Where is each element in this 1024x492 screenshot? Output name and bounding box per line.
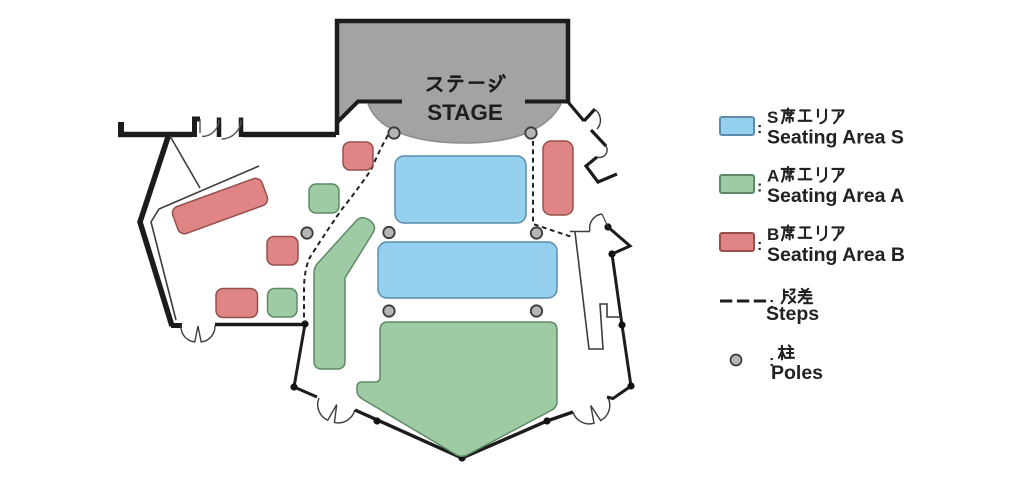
svg-text:B: B [767, 225, 779, 244]
svg-text:Seating Area S: Seating Area S [767, 127, 904, 149]
svg-text:Seating Area A: Seating Area A [767, 185, 904, 207]
svg-text::: : [757, 179, 762, 196]
svg-text::: : [757, 120, 762, 137]
svg-text:STAGE: STAGE [427, 100, 503, 125]
svg-text:Seating Area B: Seating Area B [767, 244, 905, 266]
svg-text:Poles: Poles [771, 362, 823, 384]
svg-text::: : [757, 237, 762, 254]
svg-text:A: A [767, 167, 779, 186]
svg-text:Steps: Steps [766, 303, 819, 325]
svg-text:S: S [767, 108, 778, 127]
